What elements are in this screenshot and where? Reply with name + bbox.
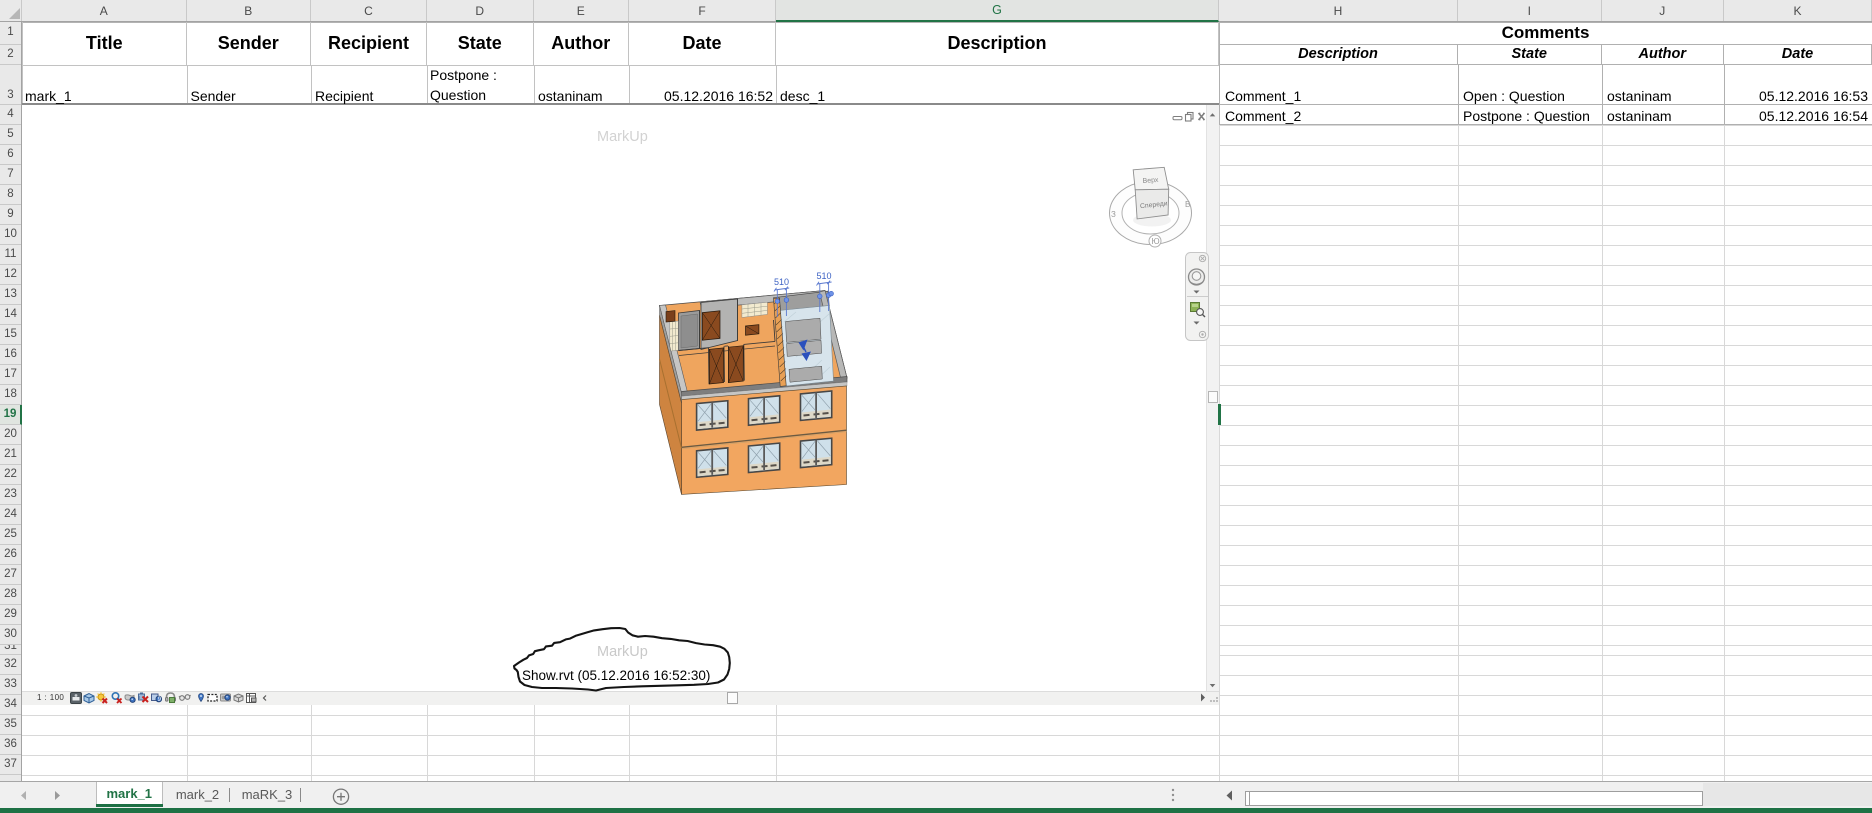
svg-text:З: З <box>1111 210 1116 219</box>
svg-text:В: В <box>1185 200 1190 209</box>
svg-text:510: 510 <box>817 271 832 281</box>
svg-text:Ю: Ю <box>1152 237 1160 246</box>
svg-text:510: 510 <box>774 277 789 287</box>
svg-text:Верх: Верх <box>1142 177 1159 185</box>
